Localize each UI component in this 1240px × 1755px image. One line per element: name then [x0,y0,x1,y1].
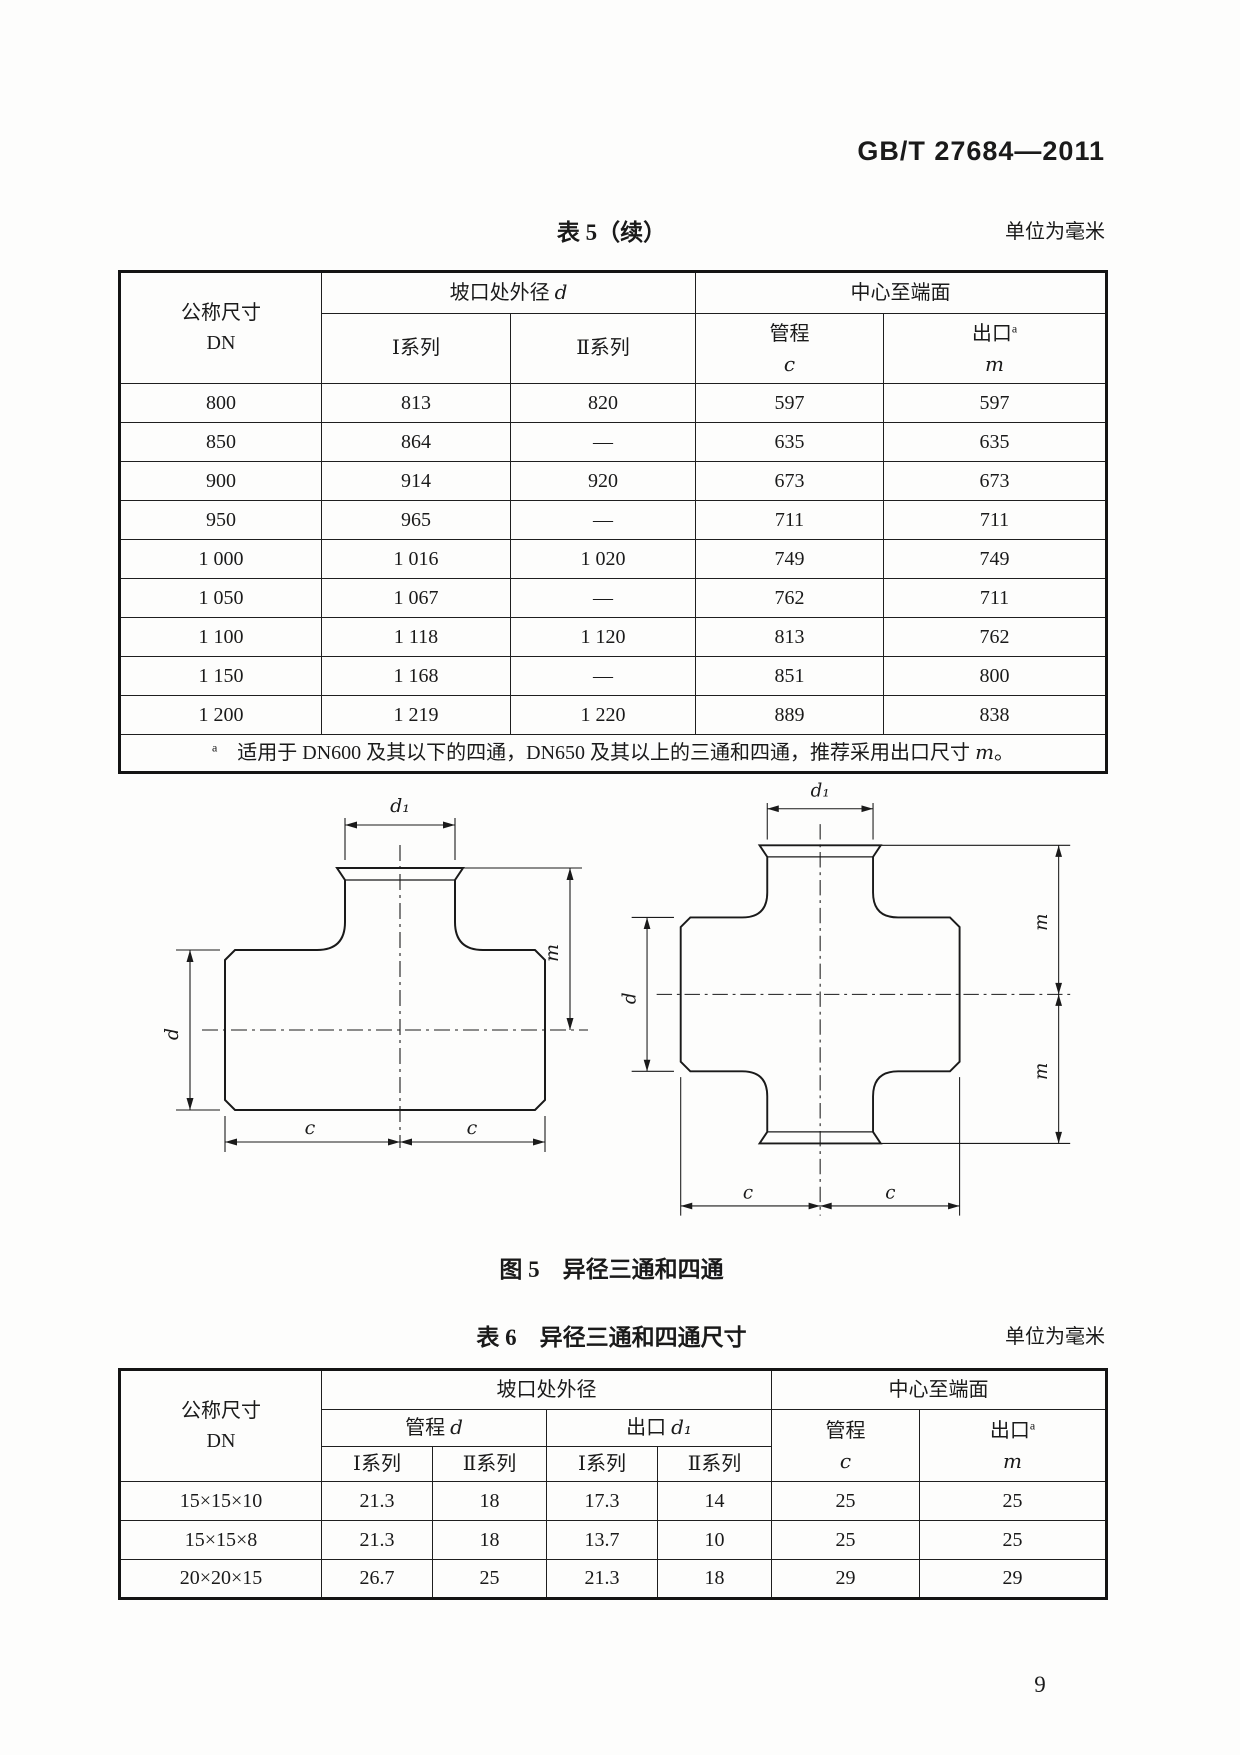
table6-title: 表 6 异径三通和四通尺寸 [118,1318,1105,1352]
table-cell: 762 [884,618,1107,657]
table5-col-series1: Ⅰ系列 [322,314,511,384]
cross-m-label-bottom: m [1031,1063,1052,1080]
table-cell: 597 [696,384,884,423]
footnote-var: m [975,740,994,764]
arrow-icon [948,1203,960,1210]
table6-col-run: 管程 c [772,1410,920,1482]
table-cell: 864 [322,423,511,462]
arrow-icon [443,822,455,829]
table-cell: 10 [658,1521,772,1560]
table-cell: 1 000 [120,540,322,579]
table5-header-row-1: 公称尺寸 DN 坡口处外径 d 中心至端面 [120,272,1107,314]
outlet-var: m [920,1446,1105,1476]
table-cell: 25 [920,1482,1107,1521]
run-label: 管程 [772,1416,919,1446]
table6-body: 15×15×1021.31817.314252515×15×821.31813.… [120,1482,1107,1599]
table-cell: 920 [511,462,696,501]
cross-drawing: d₁ m m d [618,778,1080,1230]
table5-col-outlet: 出口a m [884,314,1107,384]
table-cell: 21.3 [547,1560,658,1599]
table5-title: 表 5（续） [118,213,1105,247]
table-cell: 21.3 [322,1482,433,1521]
table-cell: 1 220 [511,696,696,735]
run-label: 管程 [696,319,883,349]
run-var: c [772,1446,919,1476]
run-var: c [696,349,883,379]
arrow-icon [400,1139,412,1146]
table-cell: 711 [884,579,1107,618]
table-cell: — [511,501,696,540]
arrow-icon [187,950,194,962]
table5-footnote: a 适用于 DN600 及其以下的四通，DN650 及其以上的三通和四通，推荐采… [120,735,1107,773]
outlet-d1-label: 出口 [626,1417,671,1439]
table-row: 1 0001 0161 020749749 [120,540,1107,579]
tee-c-label-right: c [467,1117,478,1139]
table-row: 900914920673673 [120,462,1107,501]
dn-code: DN [121,1426,321,1456]
table-cell: 29 [772,1560,920,1599]
table-cell: 813 [322,384,511,423]
table-cell: — [511,657,696,696]
table-cell: 850 [120,423,322,462]
table-row: 20×20×1526.72521.3182929 [120,1560,1107,1599]
table-cell: 21.3 [322,1521,433,1560]
table-row: 950965—711711 [120,501,1107,540]
table-row: 800813820597597 [120,384,1107,423]
document-page: GB/T 27684—2011 表 5（续） 单位为毫米 公称尺寸 DN 坡口处… [0,0,1240,1755]
table-cell: 18 [433,1521,547,1560]
cross-m-label-top: m [1031,914,1052,931]
table-cell: 749 [884,540,1107,579]
table6: 公称尺寸 DN 坡口处外径 中心至端面 管程 d 出口 d₁ 管程 c 出口a … [118,1368,1105,1600]
table-cell: 900 [120,462,322,501]
table-cell: 711 [884,501,1107,540]
table-cell: 673 [696,462,884,501]
table5-col-run: 管程 c [696,314,884,384]
table-cell: 1 067 [322,579,511,618]
table-cell: 820 [511,384,696,423]
table5-col-dn: 公称尺寸 DN [120,272,322,384]
table5-col-series2: Ⅱ系列 [511,314,696,384]
outlet-footnote-mark: a [1030,1418,1035,1432]
table5: 公称尺寸 DN 坡口处外径 d 中心至端面 Ⅰ系列 Ⅱ系列 管程 c 出口a m… [118,270,1105,774]
dn-label: 公称尺寸 [121,1396,321,1426]
table6-group-outer-diameter: 坡口处外径 [322,1370,772,1410]
table-cell: 889 [696,696,884,735]
table-cell: 800 [120,384,322,423]
table-row: 1 1001 1181 120813762 [120,618,1107,657]
table6-group-center-to-end: 中心至端面 [772,1370,1107,1410]
table-cell: 17.3 [547,1482,658,1521]
arrow-icon [809,1203,821,1210]
table-cell: 762 [696,579,884,618]
table-cell: 950 [120,501,322,540]
table5-grid: 公称尺寸 DN 坡口处外径 d 中心至端面 Ⅰ系列 Ⅱ系列 管程 c 出口a m… [118,270,1108,774]
run-d-var: d [450,1415,463,1439]
table-cell: 29 [920,1560,1107,1599]
arrow-icon [345,822,357,829]
table6-caption-row: 表 6 异径三通和四通尺寸 单位为毫米 [118,1318,1105,1348]
table-cell: 26.7 [322,1560,433,1599]
table5-unit-note: 单位为毫米 [1005,215,1105,244]
table5-group-center-to-end: 中心至端面 [696,272,1107,314]
figure5-caption: 图 5 异径三通和四通 [118,1250,1105,1284]
arrow-icon [533,1139,545,1146]
arrow-icon [567,1018,574,1030]
table5-body: 800813820597597850864—635635900914920673… [120,384,1107,735]
table-cell: — [511,423,696,462]
table6-group-run-d: 管程 d [322,1410,547,1447]
tee-d-label: d [161,1028,183,1040]
tee-d1-label: d₁ [390,795,410,817]
table-cell: 635 [884,423,1107,462]
table-cell: 711 [696,501,884,540]
run-d-label: 管程 [405,1417,450,1439]
table6-col-outlet: 出口a m [920,1410,1107,1482]
table-row: 850864—635635 [120,423,1107,462]
table-cell: 965 [322,501,511,540]
outlet-label-line: 出口a [884,319,1105,349]
table5-group-outer-diameter: 坡口处外径 d [322,272,696,314]
arrow-icon [1055,845,1062,857]
arrow-icon [1055,994,1062,1006]
table6-group-outlet-d1: 出口 d₁ [547,1410,772,1447]
table6-col-series2: Ⅱ系列 [433,1447,547,1482]
table-cell: 597 [884,384,1107,423]
page-number: 9 [1020,1672,1060,1698]
tee-outline [225,868,545,1110]
outer-diameter-label: 坡口处外径 [450,282,555,304]
footnote-text: 适用于 DN600 及其以下的四通，DN650 及其以上的三通和四通，推荐采用出… [217,742,975,764]
arrow-icon [1055,1132,1062,1144]
tee-m-label: m [541,944,563,962]
table-cell: 1 118 [322,618,511,657]
arrow-icon [644,917,651,929]
tee-c-label-left: c [305,1117,316,1139]
table-row: 1 1501 168—851800 [120,657,1107,696]
table6-unit-note: 单位为毫米 [1005,1320,1105,1349]
cross-d1-label: d₁ [811,780,830,801]
outer-diameter-var: d [555,280,568,304]
figure5-tee-diagram: d₁ m d c c [150,790,590,1170]
table6-col-series3: Ⅰ系列 [547,1447,658,1482]
arrow-icon [862,805,874,812]
outlet-label-line: 出口a [920,1416,1105,1446]
table-cell: 18 [658,1560,772,1599]
table6-col-dn: 公称尺寸 DN [120,1370,322,1482]
arrow-icon [388,1139,400,1146]
arrow-icon [820,1203,832,1210]
table-cell: 1 016 [322,540,511,579]
center-to-end-label: 中心至端面 [851,282,951,304]
table-row: 15×15×1021.31817.3142525 [120,1482,1107,1521]
table5-caption-row: 表 5（续） 单位为毫米 [118,213,1105,243]
cross-d-label: d [620,992,641,1004]
table-cell: — [511,579,696,618]
outlet-label: 出口 [972,323,1012,345]
outlet-var: m [884,349,1105,379]
table-cell: 813 [696,618,884,657]
arrow-icon [767,805,779,812]
table5-footnote-row: a 适用于 DN600 及其以下的四通，DN650 及其以上的三通和四通，推荐采… [120,735,1107,773]
figure5-cross-diagram: d₁ m m d [618,778,1080,1235]
table-cell: 635 [696,423,884,462]
arrow-icon [567,868,574,880]
table-cell: 851 [696,657,884,696]
table-cell: 1 120 [511,618,696,657]
table-cell: 1 050 [120,579,322,618]
arrow-icon [1055,983,1062,995]
table-cell: 18 [433,1482,547,1521]
outlet-d1-var: d₁ [671,1415,692,1439]
table6-col-series4: Ⅱ系列 [658,1447,772,1482]
outlet-label: 出口 [990,1420,1030,1442]
cross-c-label-right: c [885,1182,895,1203]
outlet-footnote-mark: a [1012,321,1017,335]
table6-col-series1: Ⅰ系列 [322,1447,433,1482]
table-cell: 15×15×10 [120,1482,322,1521]
table-cell: 1 150 [120,657,322,696]
footnote-end: 。 [994,742,1014,764]
standard-number-header: GB/T 27684—2011 [0,136,1105,167]
dn-label: 公称尺寸 [121,298,321,328]
table6-grid: 公称尺寸 DN 坡口处外径 中心至端面 管程 d 出口 d₁ 管程 c 出口a … [118,1368,1108,1600]
arrow-icon [225,1139,237,1146]
table6-header-row-1: 公称尺寸 DN 坡口处外径 中心至端面 [120,1370,1107,1410]
table-cell: 15×15×8 [120,1521,322,1560]
table-cell: 749 [696,540,884,579]
tee-drawing: d₁ m d c c [150,790,590,1165]
table-cell: 800 [884,657,1107,696]
table-cell: 673 [884,462,1107,501]
table-cell: 914 [322,462,511,501]
cross-c-label-left: c [743,1182,753,1203]
table-cell: 13.7 [547,1521,658,1560]
arrow-icon [681,1203,693,1210]
table-cell: 1 020 [511,540,696,579]
table-cell: 25 [920,1521,1107,1560]
table-cell: 25 [772,1482,920,1521]
table-cell: 20×20×15 [120,1560,322,1599]
table-cell: 25 [772,1521,920,1560]
table-cell: 838 [884,696,1107,735]
arrow-icon [187,1098,194,1110]
table-cell: 14 [658,1482,772,1521]
table-cell: 25 [433,1560,547,1599]
dn-code: DN [121,328,321,358]
table-cell: 1 100 [120,618,322,657]
table-row: 15×15×821.31813.7102525 [120,1521,1107,1560]
table-cell: 1 168 [322,657,511,696]
table-row: 1 2001 2191 220889838 [120,696,1107,735]
table-row: 1 0501 067—762711 [120,579,1107,618]
arrow-icon [644,1060,651,1072]
table-cell: 1 200 [120,696,322,735]
table-cell: 1 219 [322,696,511,735]
